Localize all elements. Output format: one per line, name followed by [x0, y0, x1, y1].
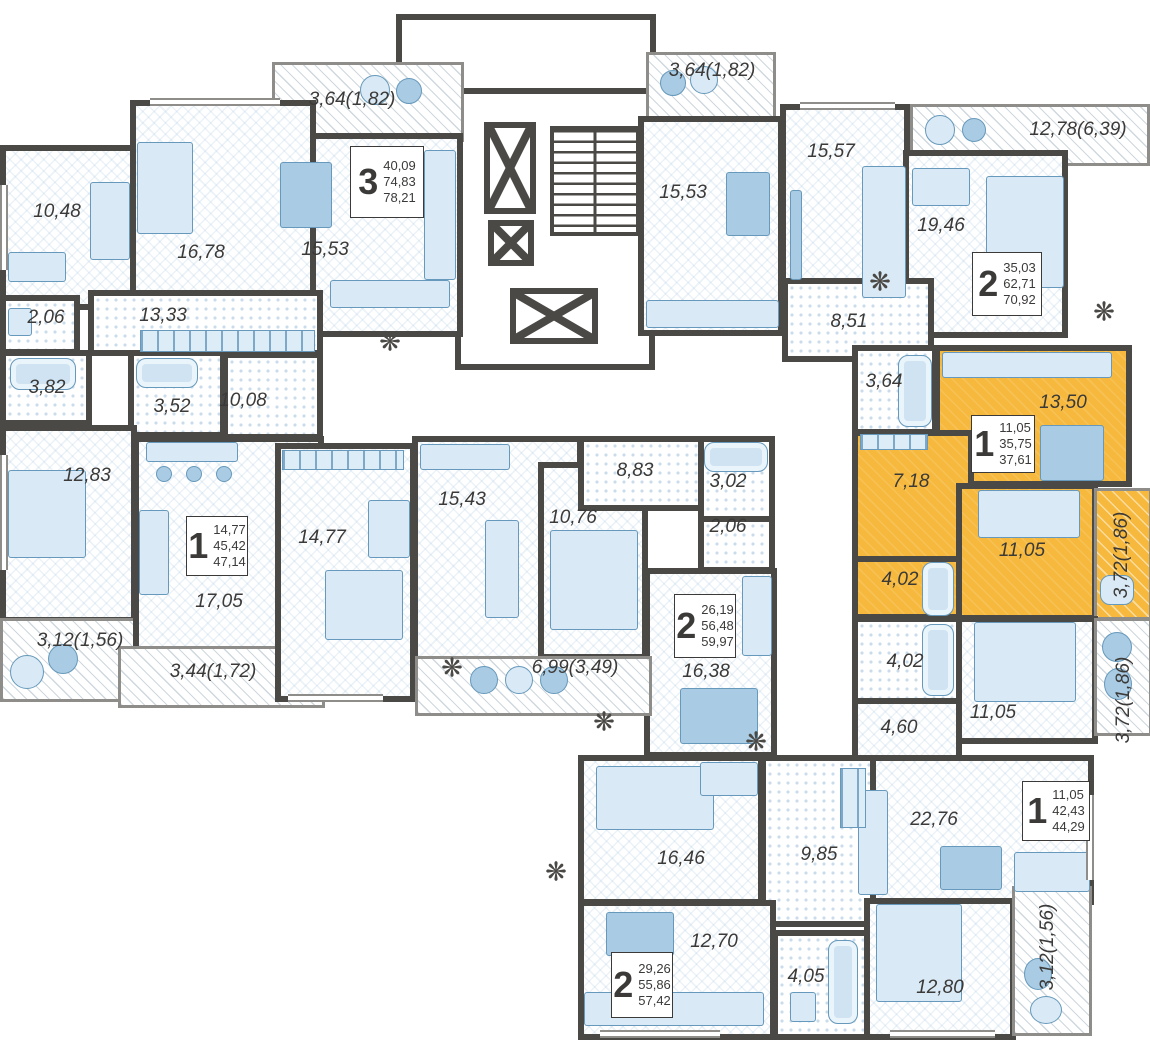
area-living: 40,09	[383, 158, 416, 174]
plant-icon	[441, 653, 463, 684]
plant-icon	[379, 327, 401, 358]
area-full: 37,61	[999, 452, 1032, 468]
room-area-label: 14,77	[298, 527, 346, 549]
bed-icon	[550, 530, 638, 630]
apartment-info-2room-topright[interactable]: 2 35,03 62,71 70,92	[972, 252, 1042, 316]
apartment-rooms-count: 1	[188, 528, 208, 564]
room-area-label: 15,43	[438, 489, 486, 511]
wardrobe-icon	[282, 450, 404, 470]
window	[288, 694, 383, 702]
area-living: 35,03	[1003, 260, 1036, 276]
apartment-info-1room-bottomright[interactable]: 1 11,05 42,43 44,29	[1022, 781, 1090, 841]
room-area-label: 10,08	[219, 390, 267, 412]
area-total: 42,43	[1052, 803, 1085, 819]
dining-table-icon	[1040, 425, 1104, 481]
area-full: 78,21	[383, 190, 416, 206]
sofa-icon	[137, 142, 193, 234]
tv-icon	[790, 190, 802, 280]
room-area-label: 3,44(1,72)	[170, 661, 257, 683]
room-area-label: 3,72(1,86)	[1113, 657, 1135, 744]
area-full: 44,29	[1052, 819, 1085, 835]
area-total: 56,48	[701, 618, 734, 634]
elevator-shaft-icon	[510, 288, 598, 344]
area-total: 55,86	[638, 977, 671, 993]
sofa-icon	[139, 510, 169, 595]
stool-icon	[156, 466, 172, 482]
stairs-icon	[550, 126, 640, 236]
room-area-label: 15,53	[301, 239, 349, 261]
room-area-label: 13,33	[139, 305, 187, 327]
desk-icon	[912, 168, 970, 206]
apartment-rooms-count: 2	[978, 266, 998, 302]
area-full: 57,42	[638, 993, 671, 1009]
bed-icon	[485, 520, 519, 618]
balcony-table-icon	[962, 118, 986, 142]
apartment-areas: 40,09 74,83 78,21	[383, 158, 416, 206]
room-area-label: 3,64(1,82)	[669, 60, 756, 82]
window	[0, 455, 8, 570]
balcony-chair-icon	[505, 666, 533, 694]
kitchen-counter	[330, 280, 450, 308]
balcony-item-icon	[1030, 996, 1062, 1024]
sofa-icon	[1014, 852, 1090, 892]
room-area-label: 4,02	[882, 569, 919, 591]
balcony-chair-icon	[470, 666, 498, 694]
balcony-item-icon	[10, 655, 44, 689]
area-total: 45,42	[213, 538, 246, 554]
bathtub-icon	[136, 358, 198, 388]
room-area-label: 3,52	[154, 396, 191, 418]
plant-icon	[745, 727, 767, 758]
wardrobe-icon	[840, 768, 866, 828]
room-area-label: 3,64	[866, 371, 903, 393]
room-area-label: 22,76	[910, 809, 958, 831]
piano-icon	[420, 444, 510, 470]
floor-plan: 3,64(1,82) 10,48 16,78 15,53 13,33 2,06 …	[0, 0, 1150, 1040]
room-area-label: 12,70	[690, 931, 738, 953]
bed-icon	[325, 570, 403, 640]
sofa-icon	[978, 490, 1080, 538]
apartment-areas: 11,05 35,75 37,61	[999, 420, 1032, 468]
area-living: 14,77	[213, 522, 246, 538]
desk-icon	[700, 762, 758, 796]
apartment-rooms-count: 3	[358, 164, 378, 200]
apartment-info-2room-center[interactable]: 2 26,19 56,48 59,97	[674, 594, 736, 658]
room-area-label: 3,02	[710, 471, 747, 493]
apartment-rooms-count: 2	[676, 608, 696, 644]
balcony-table-icon	[396, 78, 422, 104]
area-living: 26,19	[701, 602, 734, 618]
room-area-label: 16,46	[657, 848, 705, 870]
apartment-info-1room-left[interactable]: 1 14,77 45,42 47,14	[186, 516, 248, 576]
area-full: 70,92	[1003, 292, 1036, 308]
balcony-chair-icon	[925, 115, 955, 145]
window	[800, 102, 895, 110]
plant-icon	[1093, 297, 1115, 328]
plant-icon	[869, 267, 891, 298]
window	[600, 1030, 720, 1038]
room-area-label: 15,53	[659, 182, 707, 204]
bed-icon	[596, 766, 714, 830]
area-total: 62,71	[1003, 276, 1036, 292]
room-area-label: 17,05	[195, 591, 243, 613]
apartment-areas: 11,05 42,43 44,29	[1052, 787, 1085, 835]
kitchen-counter	[424, 150, 456, 280]
room-area-label: 2,06	[28, 307, 65, 329]
room-area-label: 16,38	[682, 661, 730, 683]
stool-icon	[216, 466, 232, 482]
apartment-areas: 35,03 62,71 70,92	[1003, 260, 1036, 308]
apartment-areas: 29,26 55,86 57,42	[638, 961, 671, 1009]
apartment-rooms-count: 2	[613, 967, 633, 1003]
desk-icon	[8, 252, 66, 282]
dining-table-icon	[606, 912, 674, 956]
bathtub-icon	[704, 442, 768, 472]
kitchen-counter	[646, 300, 779, 328]
room-area-label: 2,06	[710, 516, 747, 538]
dining-table-icon	[940, 846, 1002, 890]
kitchen-counter	[942, 352, 1112, 378]
stool-icon	[186, 466, 202, 482]
apartment-info-2room-bottomcenter[interactable]: 2 29,26 55,86 57,42	[611, 952, 673, 1018]
room-area-label: 11,05	[970, 702, 1016, 724]
room-area-label: 4,05	[788, 966, 825, 988]
area-full: 47,14	[213, 554, 246, 570]
room-area-label: 7,18	[893, 471, 930, 493]
room-area-label: 10,76	[549, 507, 597, 529]
room-area-label: 12,83	[63, 465, 111, 487]
room-area-label: 12,80	[916, 977, 964, 999]
area-full: 59,97	[701, 634, 734, 650]
area-living: 11,05	[1052, 787, 1085, 803]
room-area-label: 9,85	[801, 844, 838, 866]
room-area-label: 3,72(1,86)	[1111, 512, 1133, 599]
apartment-rooms-count: 1	[1027, 793, 1047, 829]
bathtub-icon	[922, 624, 954, 696]
room-area-label: 15,57	[807, 141, 855, 163]
bed-icon	[974, 622, 1076, 702]
room-area-label: 3,12(1,56)	[37, 630, 124, 652]
apartment-info-1room-highlighted[interactable]: 1 11,05 35,75 37,61	[971, 415, 1035, 473]
area-total: 35,75	[999, 436, 1032, 452]
plant-icon	[593, 707, 615, 738]
toilet-icon	[790, 992, 816, 1022]
area-living: 29,26	[638, 961, 671, 977]
window	[150, 98, 280, 106]
desk-icon	[368, 500, 410, 558]
wardrobe-icon	[140, 330, 315, 352]
bathtub-icon	[828, 940, 858, 1024]
window	[890, 1030, 995, 1038]
area-total: 74,83	[383, 174, 416, 190]
bed-icon	[90, 182, 130, 260]
area-living: 11,05	[999, 420, 1032, 436]
room-area-label: 8,83	[617, 460, 654, 482]
apartment-areas: 14,77 45,42 47,14	[213, 522, 246, 570]
apartment-areas: 26,19 56,48 59,97	[701, 602, 734, 650]
room-area-label: 6,99(3,49)	[532, 657, 619, 679]
room-area-label: 4,02	[887, 651, 924, 673]
room-area-label: 13,50	[1039, 392, 1087, 414]
room-area-label: 3,64(1,82)	[309, 89, 396, 111]
dining-table-icon	[280, 162, 332, 228]
room-area-label: 3,82	[29, 377, 66, 399]
bathtub-icon	[898, 355, 932, 427]
room-area-label: 4,60	[881, 717, 918, 739]
window	[0, 185, 8, 270]
apartment-info-3room[interactable]: 3 40,09 74,83 78,21	[350, 146, 424, 218]
room-area-label: 11,05	[999, 540, 1045, 562]
kitchen-counter	[146, 442, 238, 462]
elevator-shaft-icon	[484, 122, 536, 214]
room-area-label: 3,12(1,56)	[1037, 904, 1059, 991]
kitchen-counter	[742, 576, 772, 656]
wardrobe-icon	[860, 434, 928, 450]
plant-icon	[545, 857, 567, 888]
dining-table-icon	[726, 172, 770, 236]
room-area-label: 19,46	[917, 215, 965, 237]
elevator-shaft-icon	[488, 220, 534, 266]
apartment-rooms-count: 1	[974, 426, 994, 462]
room-area-label: 12,78(6,39)	[1029, 119, 1126, 141]
room-area-label: 10,48	[33, 201, 81, 223]
room-area-label: 16,78	[177, 242, 225, 264]
room-area-label: 8,51	[831, 311, 868, 333]
bathtub-icon	[922, 562, 954, 616]
